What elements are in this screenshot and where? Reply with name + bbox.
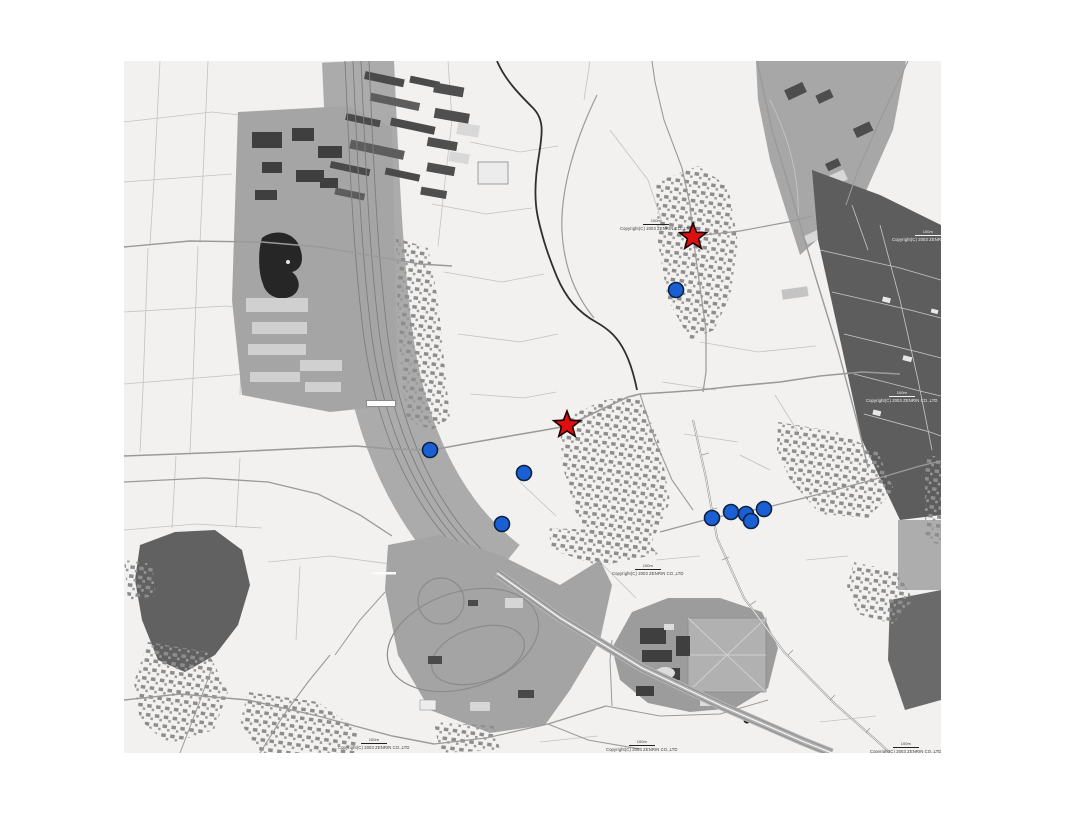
case-dot-marker [495,517,510,532]
case-dot-marker [517,466,532,481]
case-dot-marker [744,514,759,529]
case-dot-marker [724,505,739,520]
map-canvas [124,61,941,753]
case-dot-marker [757,502,772,517]
page: 100m Copyright(C) 2003 ZENRIN CO.,LTD 10… [0,0,1067,818]
case-dot-marker [669,283,684,298]
map-figure: 100m Copyright(C) 2003 ZENRIN CO.,LTD 10… [124,61,941,753]
station-name-label [366,400,396,407]
case-dot-marker [423,443,438,458]
case-dot-marker [705,511,720,526]
